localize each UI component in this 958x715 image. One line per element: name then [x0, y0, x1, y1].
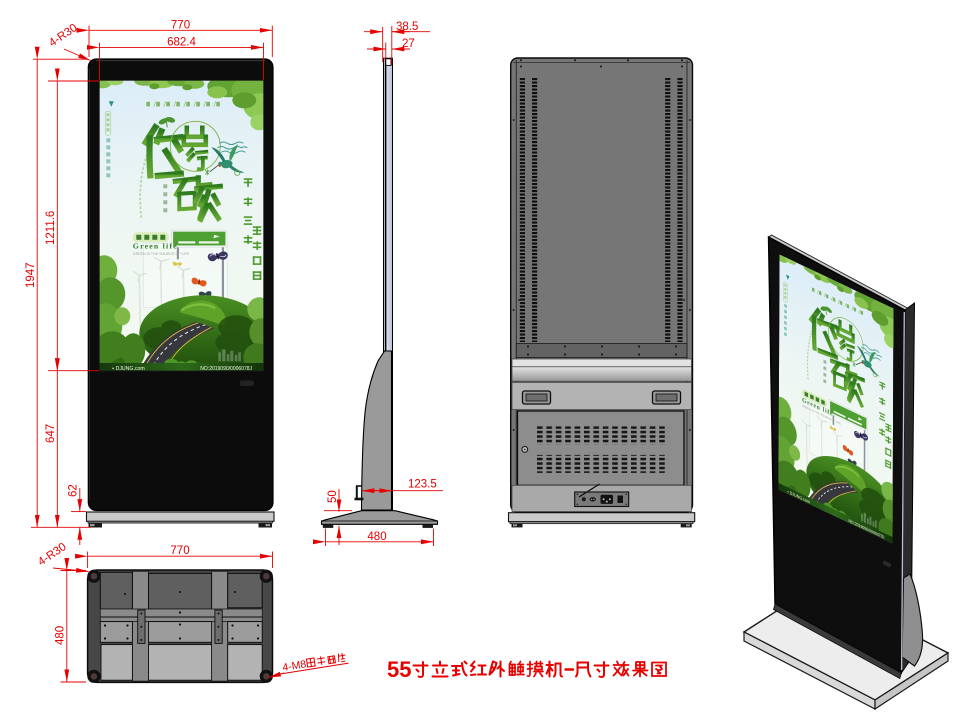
svg-text:480: 480 [367, 531, 386, 543]
svg-text:55: 55 [387, 657, 411, 682]
svg-text:770: 770 [171, 20, 190, 32]
svg-text:770: 770 [170, 545, 189, 557]
svg-text:50: 50 [327, 490, 339, 503]
svg-text:38.5: 38.5 [396, 21, 418, 33]
svg-text:1211.6: 1211.6 [45, 211, 57, 245]
svg-text:27: 27 [402, 38, 415, 50]
svg-text:647: 647 [45, 424, 57, 443]
svg-text:62: 62 [68, 484, 80, 497]
svg-text:1947: 1947 [25, 262, 37, 288]
svg-text:480: 480 [54, 626, 66, 645]
svg-text:682.4: 682.4 [167, 37, 196, 49]
svg-text:123.5: 123.5 [408, 479, 437, 491]
